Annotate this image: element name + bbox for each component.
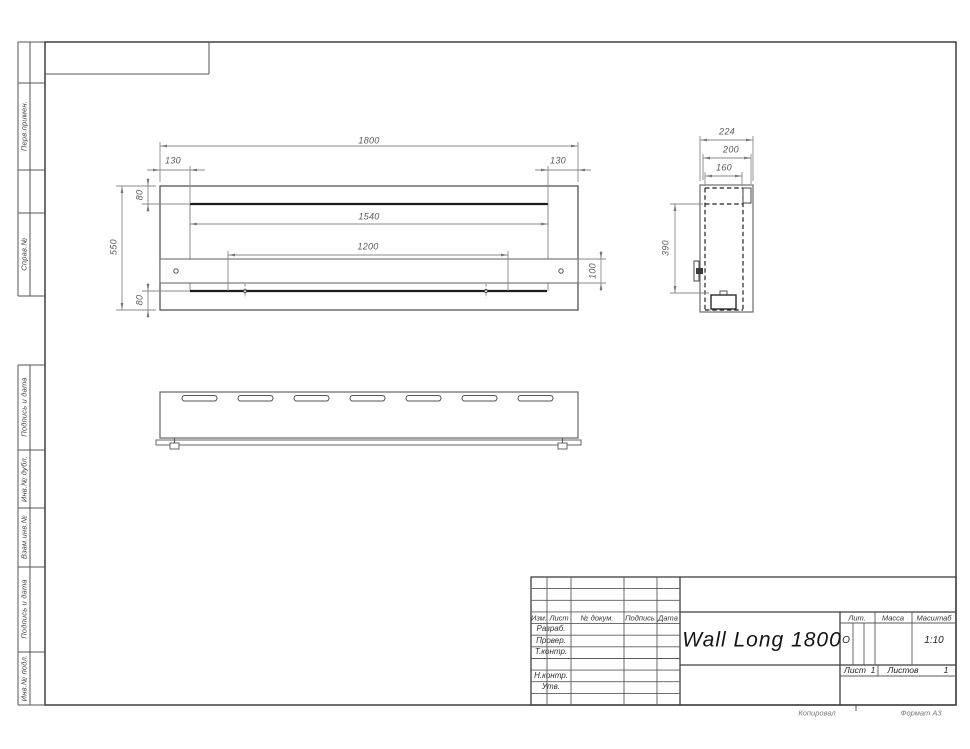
dim-bracket-height: 100 bbox=[589, 263, 598, 279]
dim-bottom-flange: 80 bbox=[136, 295, 145, 306]
tb-role-nkontr: Н.контр. bbox=[534, 672, 568, 680]
footer-copied-note: Копировал bbox=[798, 709, 835, 717]
dim-overall-width: 1800 bbox=[358, 137, 379, 146]
tb-col-doc-no: № докум. bbox=[580, 614, 613, 622]
tb-role-razrab: Разраб. bbox=[537, 625, 566, 633]
tb-role-tkontr: Т.контр. bbox=[535, 648, 567, 656]
dim-height: 550 bbox=[110, 239, 119, 255]
tb-lit-value: О bbox=[842, 636, 850, 646]
tb-sheets-value: 1 bbox=[944, 666, 949, 675]
tb-lit-label: Лит. bbox=[848, 614, 866, 622]
margin-label-podpis-data-2: Подпись и дата bbox=[20, 579, 28, 639]
document-title: Wall Long 1800 bbox=[682, 630, 842, 651]
dim-depth: 224 bbox=[719, 128, 735, 137]
tb-col-date: Дата bbox=[658, 614, 678, 622]
dim-inner-depth: 160 bbox=[716, 164, 732, 173]
margin-label-inv-dubl: Инв.№ дубл. bbox=[20, 456, 28, 502]
tb-col-sign: Подпись bbox=[625, 614, 655, 622]
dim-right-inset: 130 bbox=[550, 157, 566, 166]
tb-col-izm: Изм. bbox=[531, 614, 547, 622]
tb-mass-label: Масса bbox=[882, 614, 904, 622]
margin-label-vzam-inv: Взам.инв.№ bbox=[20, 515, 28, 559]
drawing-sheet: 1800 130 130 1540 1200 550 80 80 100 224… bbox=[0, 0, 970, 749]
tb-sheets-label: Листов bbox=[888, 666, 919, 675]
plan-view bbox=[156, 392, 581, 449]
margin-label-sprav-no: Справ.№ bbox=[20, 237, 28, 270]
tb-sheet-label: Лист bbox=[844, 666, 866, 675]
tb-scale-value: 1:10 bbox=[924, 636, 943, 646]
tb-scale-label: Масштаб bbox=[916, 614, 951, 622]
footer-format-note: Формат А3 bbox=[900, 709, 941, 717]
dim-inner-width: 1540 bbox=[358, 213, 379, 222]
tb-role-utv: Утв. bbox=[542, 683, 560, 691]
dim-left-inset: 130 bbox=[165, 157, 181, 166]
margin-label-podpis-data-1: Подпись и дата bbox=[20, 377, 28, 437]
tb-role-prover: Провер. bbox=[536, 637, 566, 645]
dim-top-flange: 80 bbox=[136, 190, 145, 201]
margin-label-inv-podl: Инв.№ подл. bbox=[20, 655, 28, 702]
tb-col-list: Лист bbox=[549, 614, 568, 622]
sheet-frame bbox=[18, 42, 956, 711]
dim-side-height: 390 bbox=[662, 240, 671, 256]
margin-label-perv-primen: Перв.примен. bbox=[20, 101, 28, 151]
dim-mount-span: 1200 bbox=[357, 243, 378, 252]
dim-depth-step: 200 bbox=[723, 146, 739, 155]
tb-sheet-value: 1 bbox=[871, 666, 876, 675]
